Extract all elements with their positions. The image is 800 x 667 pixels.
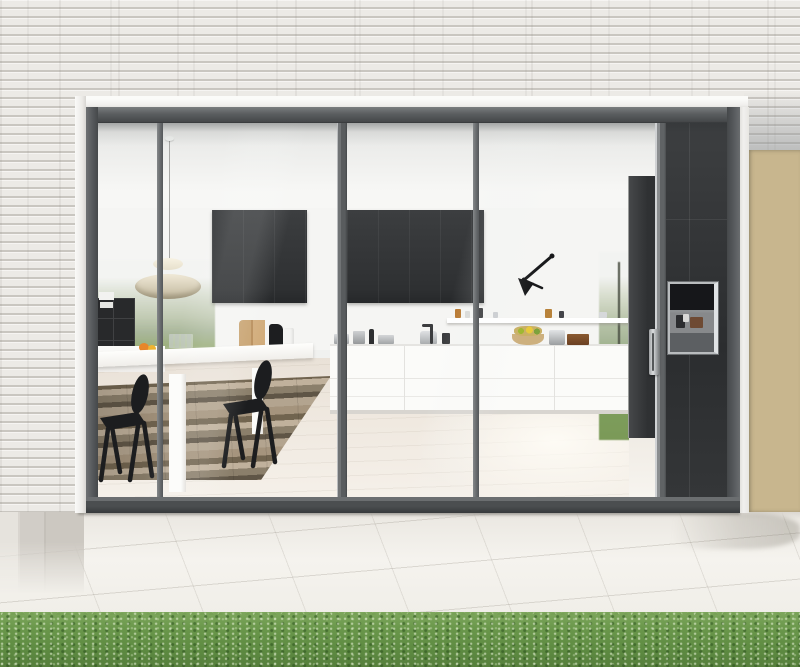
mullion — [157, 122, 163, 497]
photo — [0, 0, 800, 667]
glazed-sliding-wall — [97, 122, 728, 497]
upper-cabinets-left — [212, 210, 307, 303]
door-stile — [655, 122, 666, 497]
outer-trim-left — [75, 96, 86, 513]
dining-table-top — [97, 343, 313, 367]
built-in-coffee-machine — [668, 282, 718, 354]
worktop-items — [330, 327, 632, 344]
frame-sill — [86, 497, 740, 513]
orange-fruit — [139, 343, 149, 352]
pendant-canopy — [165, 136, 174, 141]
interior-ceiling — [97, 122, 728, 214]
mullion — [473, 122, 479, 497]
base-cabinets — [330, 344, 632, 414]
faucet — [430, 324, 433, 344]
stone-steps — [0, 512, 84, 598]
steel-pot — [549, 330, 565, 345]
dining-chair-left — [97, 372, 159, 484]
tall-unit-front — [665, 122, 728, 497]
fruit-basket — [512, 328, 544, 345]
lawn — [0, 612, 800, 667]
black-shelving-unit — [97, 298, 135, 364]
chopping-boards — [239, 320, 269, 348]
brick-shade — [744, 92, 800, 156]
wall-shadow — [662, 513, 800, 549]
timber-floor — [97, 358, 667, 497]
pendant-cord — [169, 138, 170, 262]
table-leg — [252, 368, 263, 434]
tree-trunk — [618, 262, 620, 382]
garden-view-left — [97, 260, 215, 370]
frame-head — [86, 107, 740, 123]
door-stile — [337, 122, 347, 497]
table-leg — [169, 374, 186, 492]
interior-back-wall — [97, 208, 728, 350]
timber-slat-cladding — [747, 150, 800, 513]
patchwork-rug — [97, 376, 331, 480]
books — [99, 292, 114, 300]
upper-cabinets-right — [347, 210, 484, 303]
sunlight-patch — [417, 372, 667, 497]
garden-view-right — [599, 252, 635, 440]
articulated-wall-lamp — [510, 250, 558, 304]
door-handle — [649, 329, 659, 375]
sideboard — [97, 346, 165, 372]
pendant-lamp — [135, 258, 201, 306]
drinking-glasses — [169, 334, 193, 348]
frame-jamb-left — [86, 107, 98, 513]
wooden-box — [567, 334, 589, 345]
dining-chair-right — [217, 358, 281, 470]
white-jug — [284, 328, 294, 348]
black-kettle — [269, 324, 283, 348]
yellow-fruit — [148, 345, 156, 353]
outer-trim-right — [739, 107, 749, 513]
frame-jamb-right — [727, 107, 740, 513]
